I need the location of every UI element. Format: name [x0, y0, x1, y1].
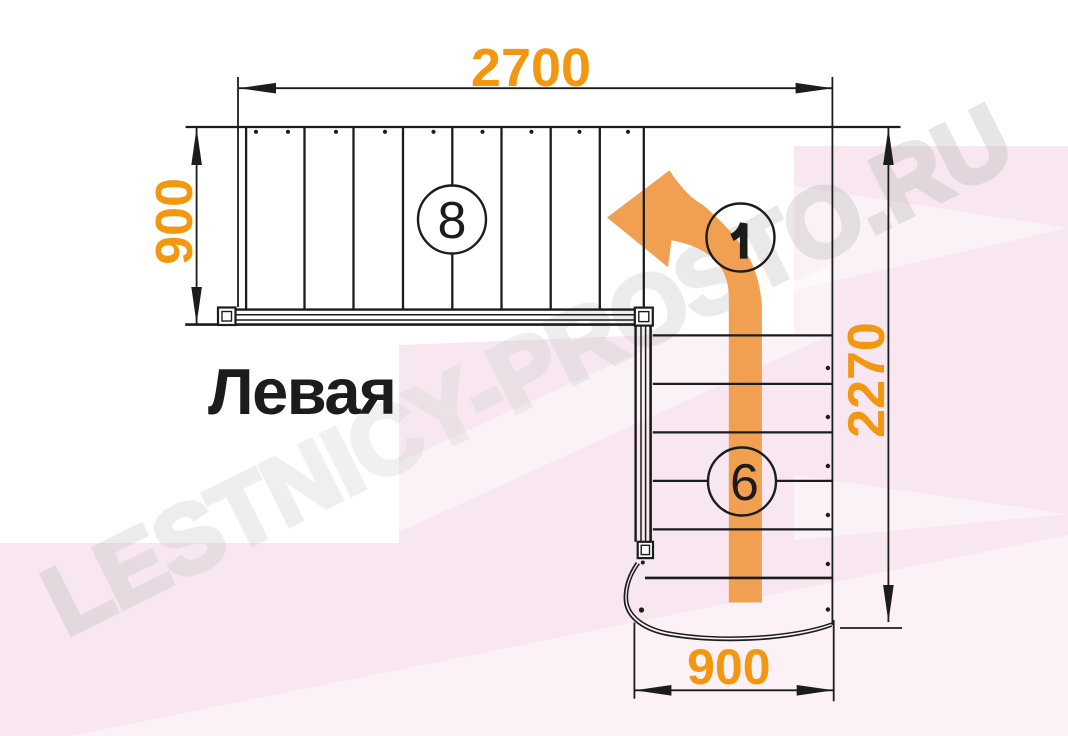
svg-text:900: 900	[146, 178, 204, 265]
svg-text:8: 8	[438, 192, 467, 250]
svg-text:6: 6	[730, 454, 759, 512]
svg-text:2270: 2270	[838, 322, 896, 438]
svg-text:900: 900	[687, 639, 770, 695]
svg-text:Левая: Левая	[208, 355, 395, 428]
svg-text:2700: 2700	[471, 38, 591, 98]
